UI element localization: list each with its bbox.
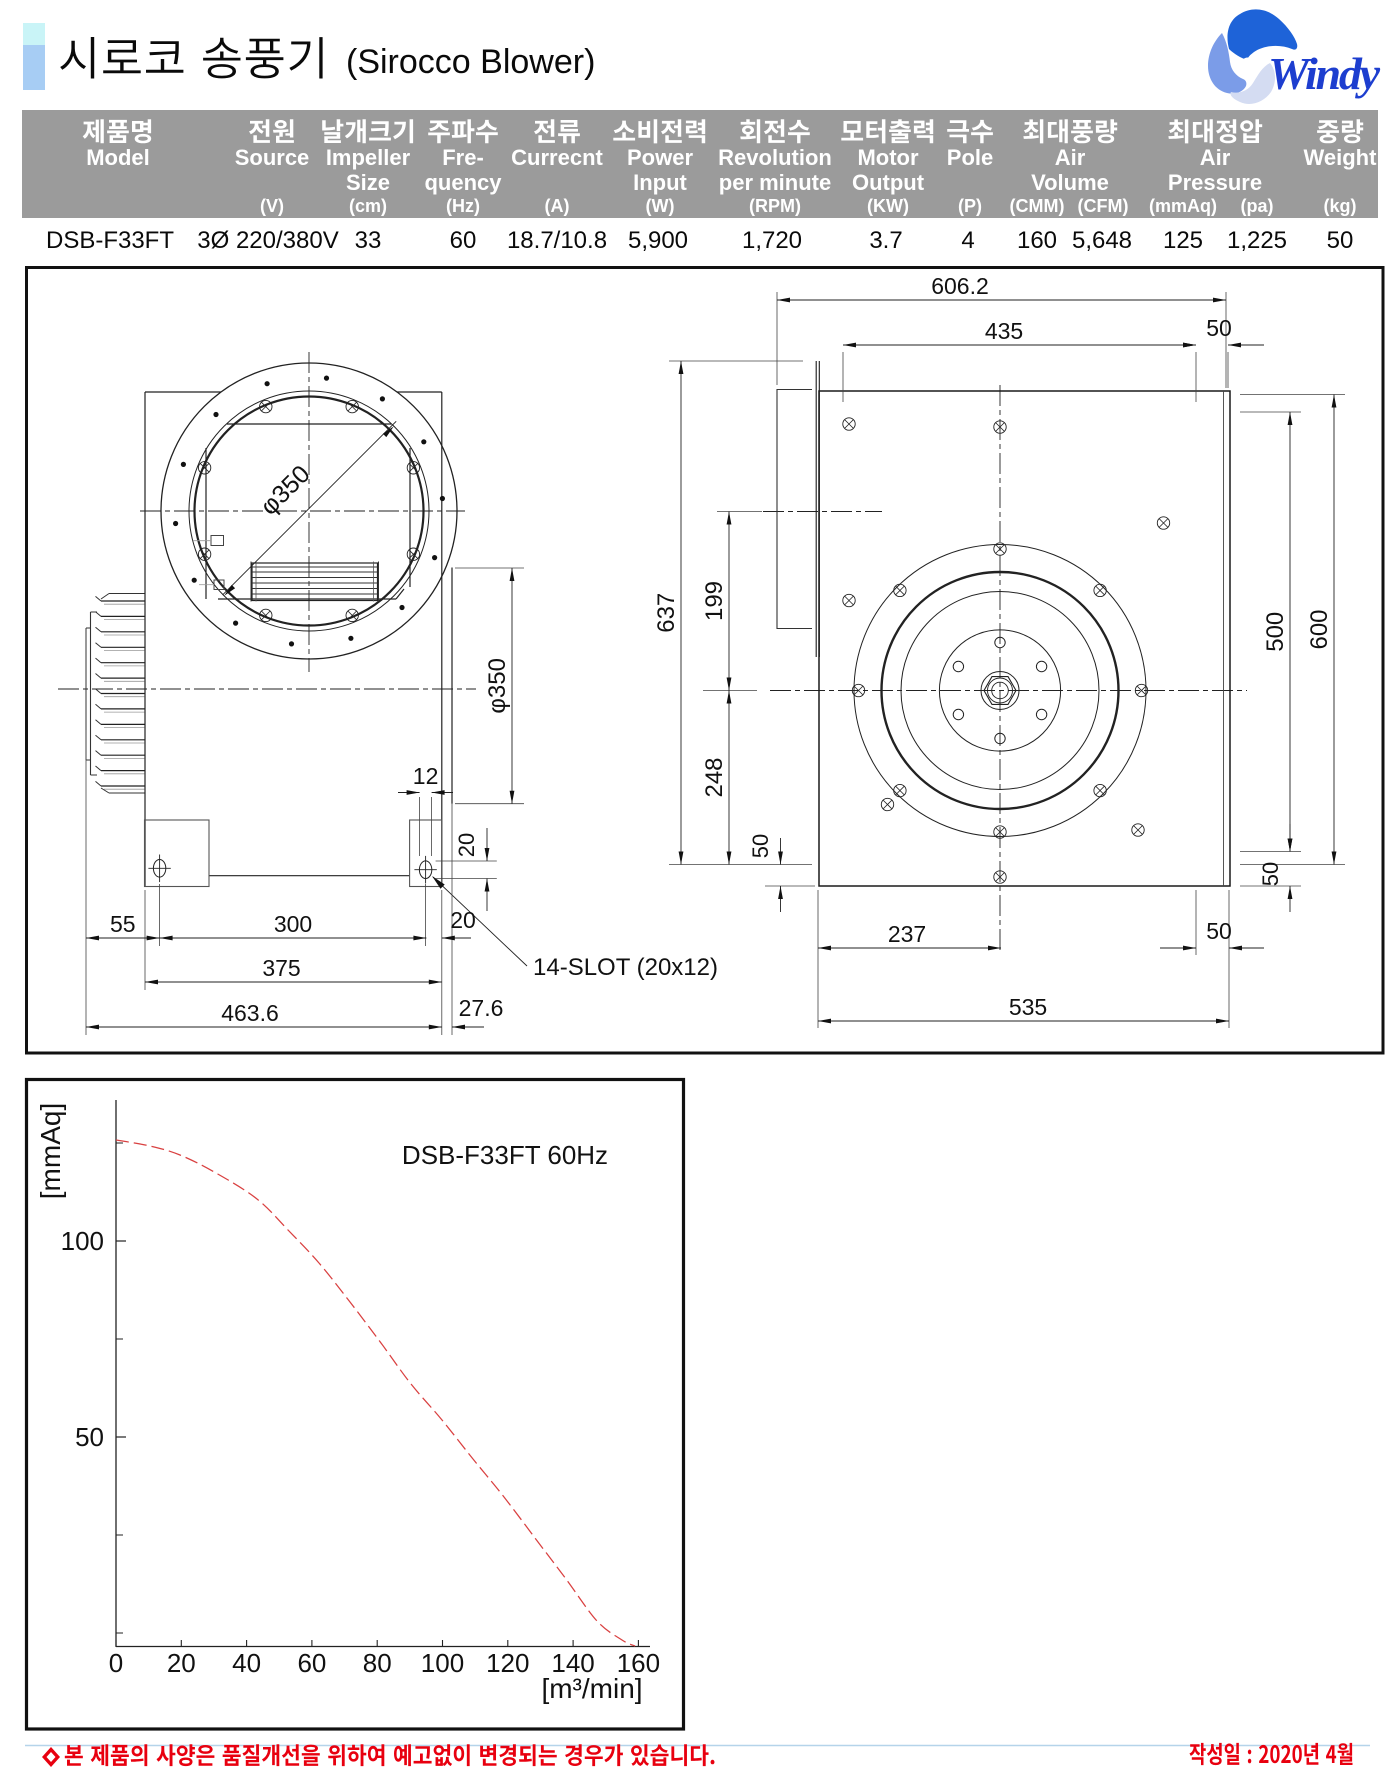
svg-text:14-SLOT (20x12): 14-SLOT (20x12)	[533, 954, 718, 981]
svg-text:300: 300	[274, 911, 312, 937]
svg-text:3.7: 3.7	[869, 227, 902, 254]
svg-text:Pressure: Pressure	[1168, 170, 1262, 195]
svg-text:20: 20	[450, 907, 476, 933]
svg-text:4: 4	[961, 227, 974, 254]
svg-text:463.6: 463.6	[221, 1000, 279, 1026]
svg-text:5,648: 5,648	[1072, 227, 1132, 254]
svg-text:φ350: φ350	[255, 460, 316, 521]
svg-text:50: 50	[1206, 315, 1232, 341]
svg-text:20: 20	[167, 1648, 196, 1678]
svg-text:Model: Model	[86, 145, 150, 170]
svg-text:DSB-F33FT 60Hz: DSB-F33FT 60Hz	[402, 1140, 608, 1170]
svg-text:50: 50	[75, 1422, 104, 1452]
svg-text:55: 55	[110, 911, 136, 937]
svg-text:80: 80	[363, 1648, 392, 1678]
svg-text:(W): (W)	[646, 196, 675, 216]
svg-text:60: 60	[450, 227, 477, 254]
svg-text:(pa): (pa)	[1241, 196, 1274, 216]
svg-text:Windy: Windy	[1268, 48, 1381, 99]
svg-text:500: 500	[1262, 612, 1289, 652]
svg-text:20: 20	[454, 833, 479, 857]
svg-text:50: 50	[1327, 227, 1354, 254]
svg-text:DSB-F33FT: DSB-F33FT	[46, 227, 174, 254]
svg-text:(cm): (cm)	[349, 196, 387, 216]
svg-text:248: 248	[701, 757, 728, 797]
svg-text:33: 33	[355, 227, 382, 254]
svg-text:27.6: 27.6	[459, 995, 504, 1021]
svg-text:Revolution: Revolution	[718, 145, 832, 170]
svg-text:600: 600	[1306, 609, 1333, 649]
svg-text:Motor: Motor	[857, 145, 919, 170]
svg-text:Impeller: Impeller	[326, 145, 411, 170]
svg-text:50: 50	[748, 834, 773, 858]
svg-text:Output: Output	[852, 170, 925, 195]
svg-text:535: 535	[1009, 994, 1047, 1020]
svg-text:5,900: 5,900	[628, 227, 688, 254]
svg-text:160: 160	[1017, 227, 1057, 254]
svg-text:12: 12	[413, 763, 439, 789]
svg-text:(KW): (KW)	[867, 196, 909, 216]
svg-text:375: 375	[262, 955, 300, 981]
svg-text:18.7/10.8: 18.7/10.8	[507, 227, 607, 254]
svg-text:(kg): (kg)	[1324, 196, 1357, 216]
svg-text:(A): (A)	[545, 196, 570, 216]
svg-text:Source: Source	[235, 145, 310, 170]
svg-text:125: 125	[1163, 227, 1203, 254]
svg-text:40: 40	[232, 1648, 261, 1678]
svg-text:(Hz): (Hz)	[446, 196, 480, 216]
svg-text:Air: Air	[1055, 145, 1086, 170]
svg-text:Fre-: Fre-	[442, 145, 484, 170]
svg-text:50: 50	[1258, 862, 1283, 886]
svg-text:100: 100	[421, 1648, 464, 1678]
svg-text:199: 199	[701, 581, 728, 621]
svg-text:1,720: 1,720	[742, 227, 802, 254]
svg-text:237: 237	[888, 921, 926, 947]
svg-text:60: 60	[297, 1648, 326, 1678]
svg-text:120: 120	[486, 1648, 529, 1678]
svg-text:435: 435	[985, 318, 1023, 344]
svg-text:φ350: φ350	[484, 658, 511, 714]
svg-text:per minute: per minute	[719, 170, 831, 195]
svg-text:quency: quency	[424, 170, 502, 195]
svg-text:(V): (V)	[260, 196, 284, 216]
svg-text:1,225: 1,225	[1227, 227, 1287, 254]
svg-text:Power: Power	[627, 145, 693, 170]
svg-text:Pole: Pole	[947, 145, 993, 170]
svg-text:50: 50	[1206, 918, 1232, 944]
svg-text:Input: Input	[633, 170, 687, 195]
svg-text:[mmAq]: [mmAq]	[35, 1103, 66, 1199]
svg-text:606.2: 606.2	[931, 273, 989, 299]
svg-text:Currecnt: Currecnt	[511, 145, 603, 170]
svg-text:(CMM): (CMM)	[1010, 196, 1065, 216]
svg-text:3Ø 220/380V: 3Ø 220/380V	[197, 227, 338, 254]
svg-text:[m³/min]: [m³/min]	[541, 1673, 642, 1704]
svg-text:637: 637	[653, 593, 680, 633]
svg-text:Volume: Volume	[1031, 170, 1109, 195]
svg-text:0: 0	[109, 1648, 123, 1678]
svg-text:(CFM): (CFM)	[1078, 196, 1129, 216]
svg-text:100: 100	[61, 1226, 104, 1256]
svg-text:(RPM): (RPM)	[749, 196, 801, 216]
svg-text:Weight: Weight	[1304, 145, 1378, 170]
svg-text:(P): (P)	[958, 196, 982, 216]
svg-text:(mmAq): (mmAq)	[1149, 196, 1217, 216]
svg-text:Air: Air	[1200, 145, 1231, 170]
svg-text:(Sirocco Blower): (Sirocco Blower)	[346, 43, 595, 81]
svg-text:Size: Size	[346, 170, 390, 195]
